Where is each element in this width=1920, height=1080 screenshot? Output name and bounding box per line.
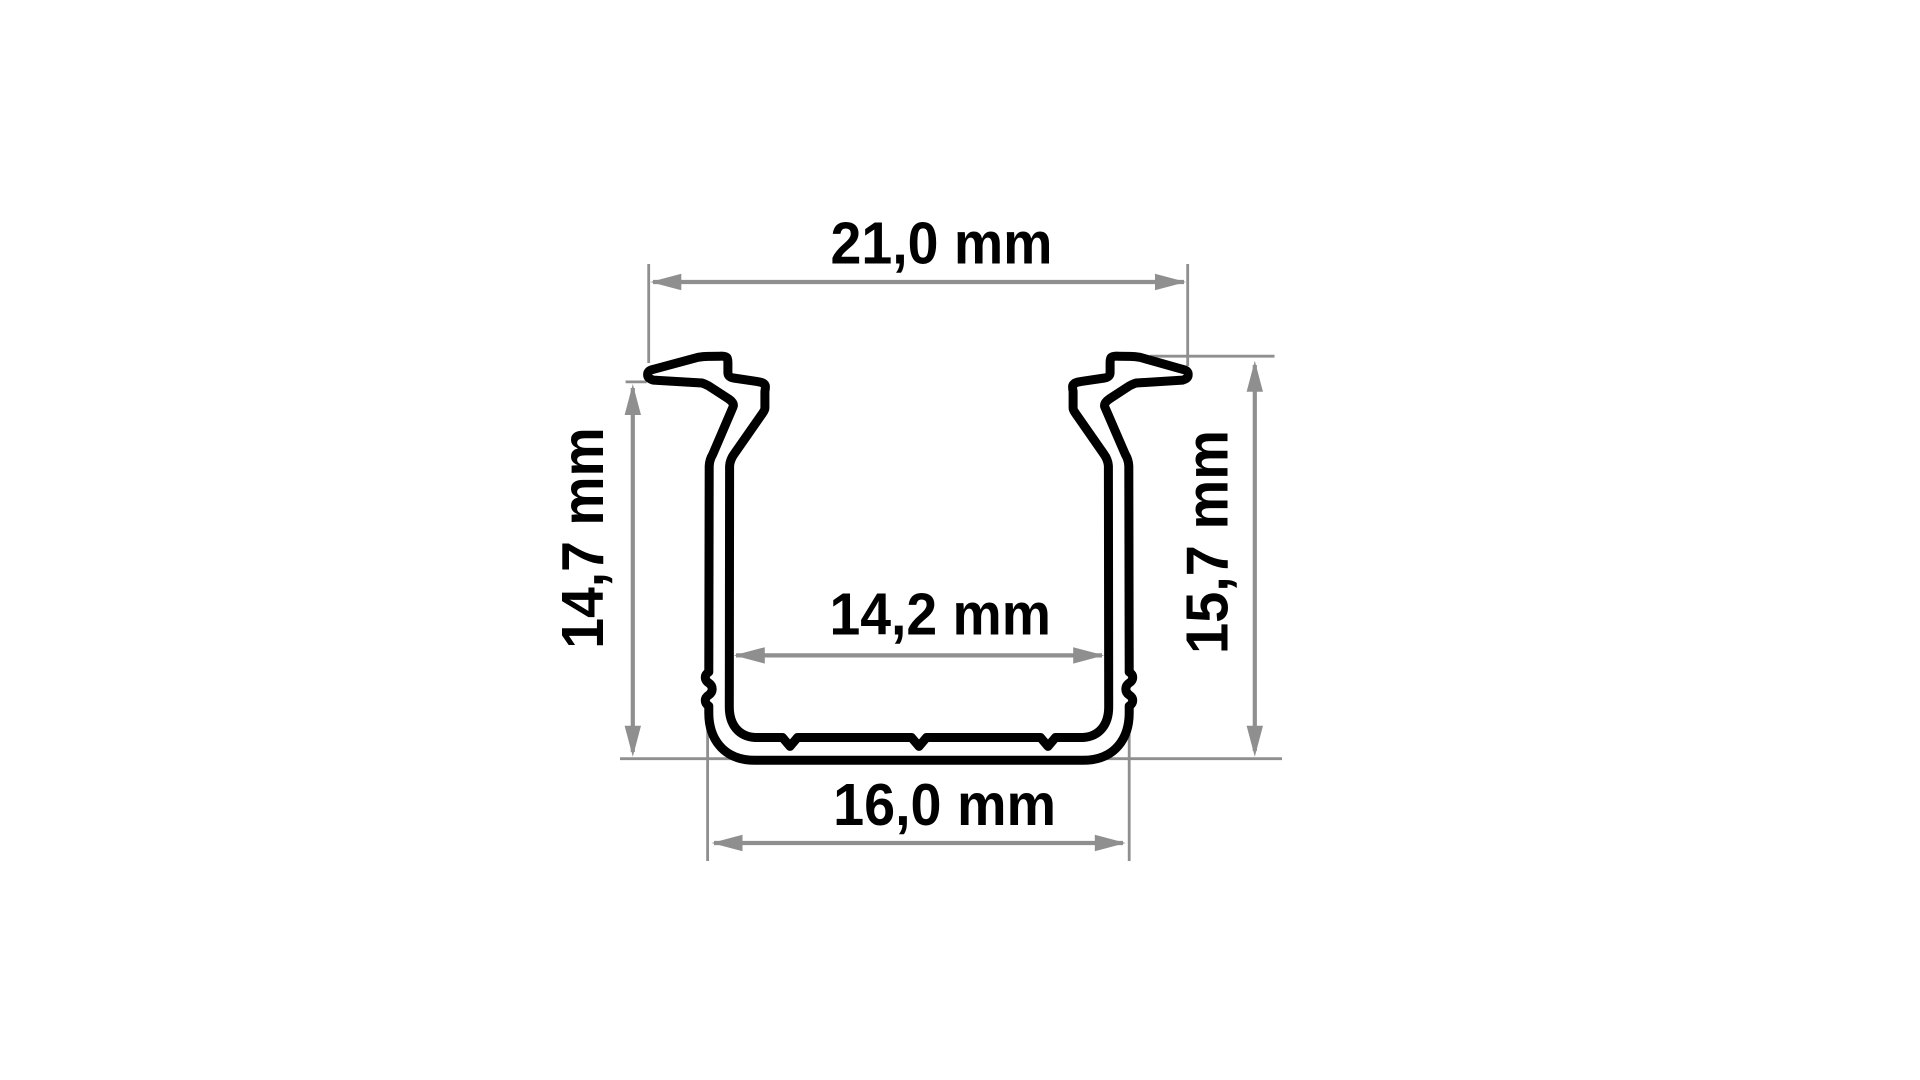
- svg-text:21,0 mm: 21,0 mm: [831, 210, 1053, 276]
- svg-text:14,2 mm: 14,2 mm: [829, 582, 1051, 648]
- svg-text:16,0 mm: 16,0 mm: [833, 772, 1056, 838]
- svg-text:15,7 mm: 15,7 mm: [1175, 430, 1241, 654]
- svg-text:14,7 mm: 14,7 mm: [550, 427, 616, 649]
